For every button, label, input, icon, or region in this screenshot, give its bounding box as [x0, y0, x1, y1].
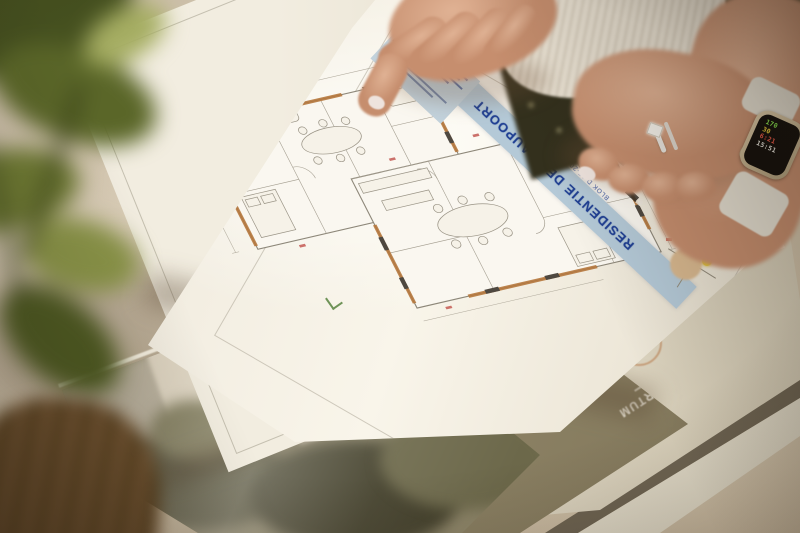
plant-foreground — [0, 0, 330, 460]
right-hand-finger — [676, 172, 716, 202]
photo-scene: IL FORTUM DE BLAUPOORT — [0, 0, 800, 533]
